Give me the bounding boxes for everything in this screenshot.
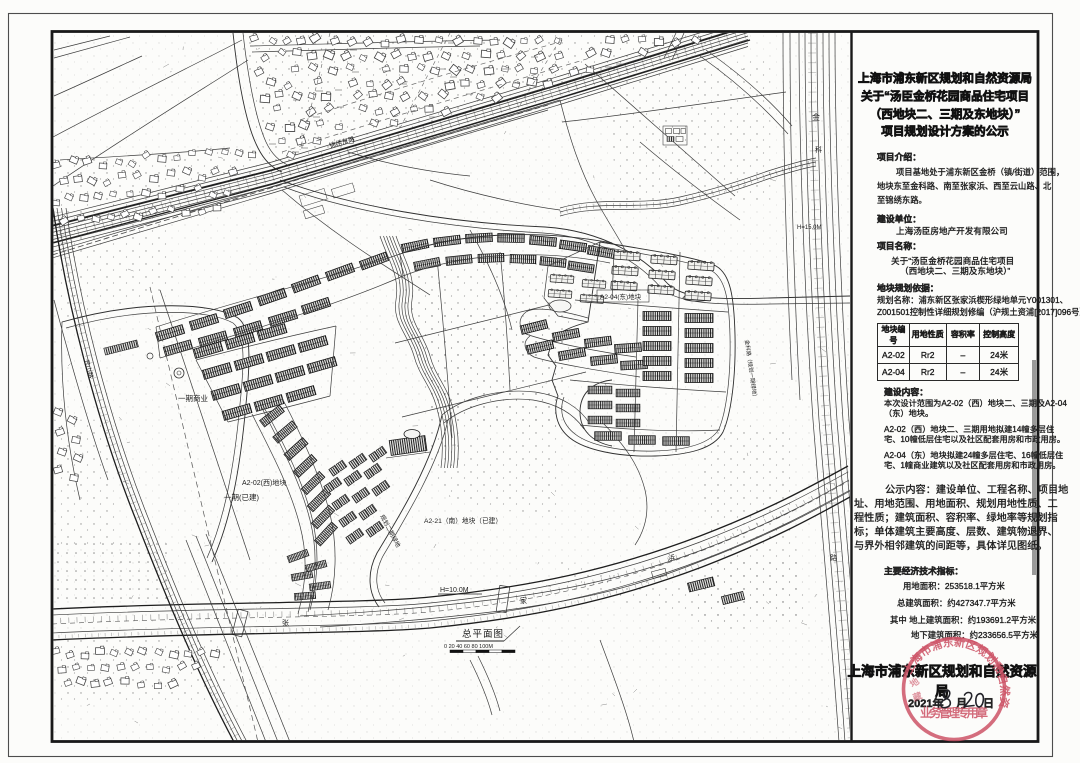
svg-text:H=10.0M: H=10.0M: [440, 587, 469, 594]
svg-text:科: 科: [815, 145, 822, 154]
svg-text:金: 金: [812, 112, 820, 122]
svg-text:藏: 藏: [911, 690, 923, 703]
svg-text:路: 路: [830, 553, 837, 562]
svg-text:浜: 浜: [668, 553, 675, 562]
svg-text:H=15.0M: H=15.0M: [797, 225, 822, 231]
svg-text:A2-21（南）地块（已建）: A2-21（南）地块（已建）: [424, 516, 502, 525]
svg-text:总平面图: 总平面图: [462, 628, 504, 640]
svg-text:家: 家: [520, 596, 527, 605]
svg-text:一期商业: 一期商业: [178, 393, 208, 403]
svg-text:一期(已建): 一期(已建): [224, 492, 259, 502]
svg-text:A2-02(西)地块: A2-02(西)地块: [242, 478, 286, 487]
svg-text:张: 张: [282, 618, 289, 627]
svg-text:A2-04(东)地块: A2-04(东)地块: [600, 292, 642, 301]
svg-text:地: 地: [907, 675, 921, 689]
svg-text:0 20 40 60 80 100M: 0 20 40 60 80 100M: [444, 644, 493, 650]
